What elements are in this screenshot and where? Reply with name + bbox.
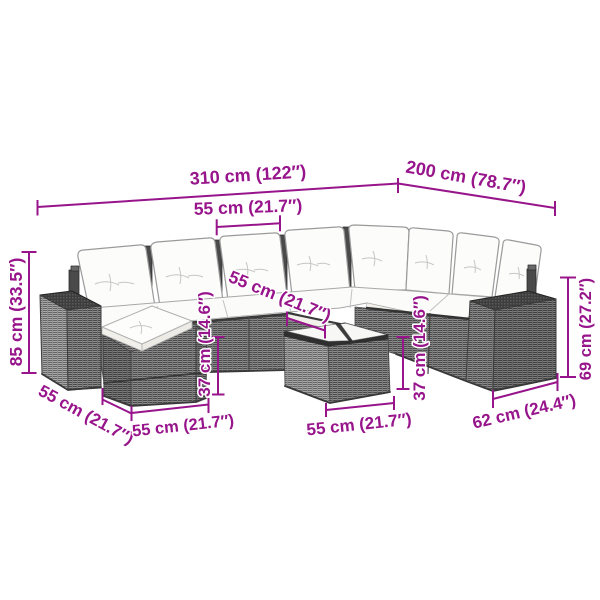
svg-text:69 cm (27.2″): 69 cm (27.2″) — [577, 278, 595, 380]
svg-text:85 cm (33.5″): 85 cm (33.5″) — [6, 258, 26, 367]
svg-text:37 cm (14.6″): 37 cm (14.6″) — [195, 291, 214, 396]
svg-text:37 cm (14.6″): 37 cm (14.6″) — [410, 295, 429, 400]
svg-text:55 cm (21.7″): 55 cm (21.7″) — [193, 195, 302, 219]
